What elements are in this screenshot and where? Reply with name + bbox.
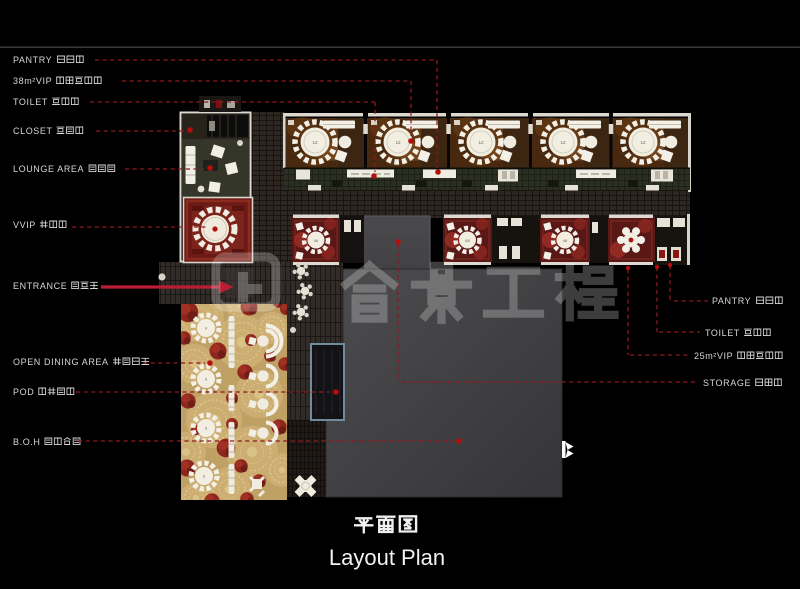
svg-text:25m²VIP: 25m²VIP — [694, 351, 733, 361]
svg-text:46: 46 — [563, 238, 568, 243]
svg-text:12: 12 — [640, 140, 646, 145]
svg-text:VVIP: VVIP — [13, 220, 36, 230]
svg-text:8: 8 — [205, 378, 207, 382]
svg-text:8: 8 — [203, 475, 205, 479]
svg-text:68: 68 — [465, 238, 470, 243]
svg-text:46: 46 — [314, 238, 319, 243]
svg-text:Layout Plan: Layout Plan — [329, 545, 445, 570]
svg-text:PANTRY: PANTRY — [712, 296, 751, 306]
svg-text:TOILET: TOILET — [705, 328, 740, 338]
svg-text:STORAGE: STORAGE — [703, 378, 751, 388]
svg-text:TOILET: TOILET — [13, 97, 48, 107]
svg-text:12: 12 — [395, 140, 401, 145]
svg-text:OPEN DINING AREA: OPEN DINING AREA — [13, 357, 109, 367]
svg-text:12: 12 — [560, 140, 566, 145]
svg-text:LOUNGE AREA: LOUNGE AREA — [13, 164, 84, 174]
svg-text:ENTRANCE: ENTRANCE — [13, 281, 67, 291]
svg-text:B.O.H: B.O.H — [13, 437, 41, 447]
svg-text:12: 12 — [478, 140, 484, 145]
svg-text:CLOSET: CLOSET — [13, 126, 53, 136]
svg-text:38m²VIP: 38m²VIP — [13, 76, 52, 86]
svg-text:PANTRY: PANTRY — [13, 55, 52, 65]
svg-text:POD: POD — [13, 387, 34, 397]
svg-text:8: 8 — [205, 427, 207, 431]
svg-text:8: 8 — [205, 327, 207, 331]
svg-text:12: 12 — [312, 140, 318, 145]
